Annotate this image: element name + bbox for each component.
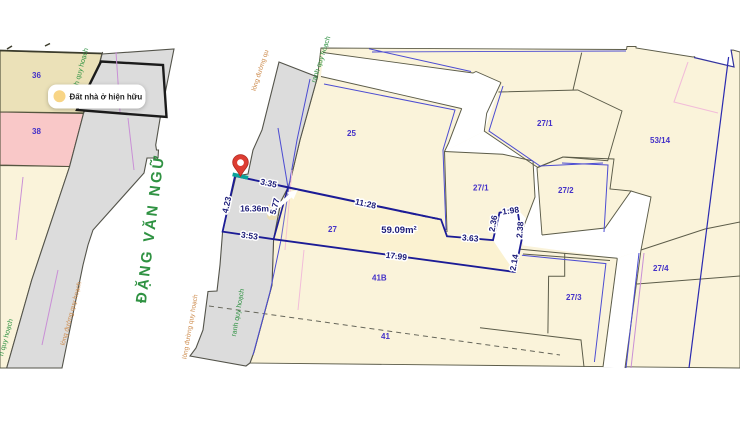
svg-text:Đất nhà ở hiện hữu: Đất nhà ở hiện hữu [70, 92, 143, 101]
svg-text:27/2: 27/2 [558, 186, 574, 195]
svg-text:16.36m: 16.36m [240, 204, 269, 214]
svg-text:41: 41 [381, 332, 390, 341]
svg-text:27/1: 27/1 [537, 119, 553, 128]
svg-text:27: 27 [328, 225, 337, 234]
svg-text:27/4: 27/4 [653, 264, 669, 273]
svg-text:59.09m²: 59.09m² [381, 225, 416, 236]
svg-text:2.38: 2.38 [514, 221, 525, 239]
svg-text:41B: 41B [372, 274, 387, 283]
svg-text:53/14: 53/14 [650, 136, 671, 145]
svg-text:27/3: 27/3 [566, 293, 582, 302]
svg-text:27/1: 27/1 [473, 184, 489, 193]
svg-text:3.63: 3.63 [462, 232, 480, 243]
svg-text:38: 38 [32, 127, 41, 136]
svg-text:25: 25 [347, 129, 356, 138]
svg-text:36: 36 [32, 71, 41, 80]
